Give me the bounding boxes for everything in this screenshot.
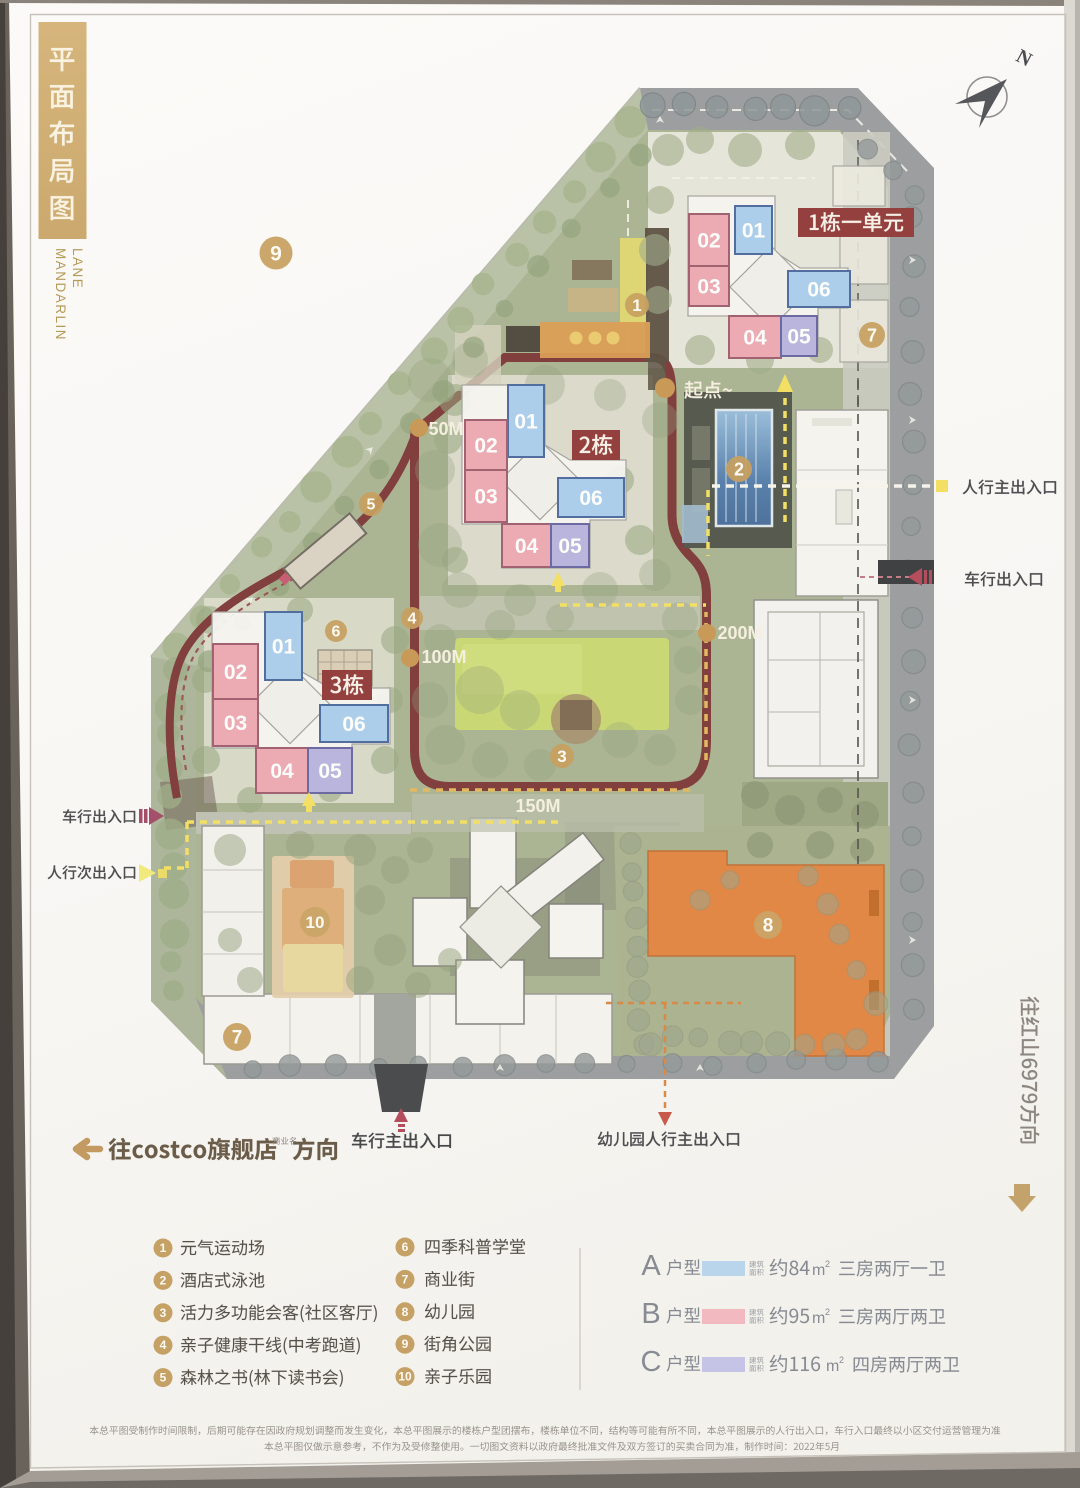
svg-text:7: 7	[232, 1028, 243, 1049]
svg-text:2: 2	[825, 1307, 830, 1317]
svg-text:6: 6	[402, 1240, 409, 1254]
svg-text:150M: 150M	[515, 796, 560, 816]
svg-text:1: 1	[632, 296, 641, 315]
svg-text:100M: 100M	[421, 647, 466, 667]
svg-text:A: A	[641, 1250, 661, 1282]
svg-text:5: 5	[367, 497, 376, 514]
svg-text:2: 2	[839, 1355, 844, 1365]
svg-text:6: 6	[332, 624, 341, 641]
svg-text:2: 2	[734, 459, 744, 479]
svg-text:8: 8	[402, 1305, 409, 1319]
svg-text:1: 1	[160, 1241, 167, 1255]
svg-text:5: 5	[160, 1371, 167, 1385]
svg-text:4: 4	[408, 611, 417, 628]
svg-text:50M: 50M	[428, 419, 463, 439]
svg-text:9: 9	[402, 1337, 409, 1351]
svg-text:B: B	[641, 1298, 660, 1330]
svg-text:10: 10	[398, 1370, 412, 1384]
svg-text:4: 4	[160, 1338, 167, 1352]
svg-text:3: 3	[160, 1306, 167, 1320]
svg-text:m: m	[826, 1358, 839, 1375]
svg-text:9: 9	[270, 242, 282, 265]
svg-text:m: m	[812, 1310, 825, 1327]
svg-text:7: 7	[402, 1272, 409, 1286]
svg-text:2: 2	[825, 1259, 830, 1269]
svg-text:MANDARLIN: MANDARLIN	[53, 248, 68, 341]
svg-text:3: 3	[557, 747, 566, 766]
svg-text:7: 7	[867, 325, 877, 345]
svg-text:200M: 200M	[717, 623, 762, 643]
svg-text:LANE: LANE	[70, 248, 85, 289]
svg-text:2: 2	[160, 1273, 167, 1287]
svg-text:m: m	[812, 1262, 825, 1279]
svg-text:C: C	[641, 1346, 662, 1378]
